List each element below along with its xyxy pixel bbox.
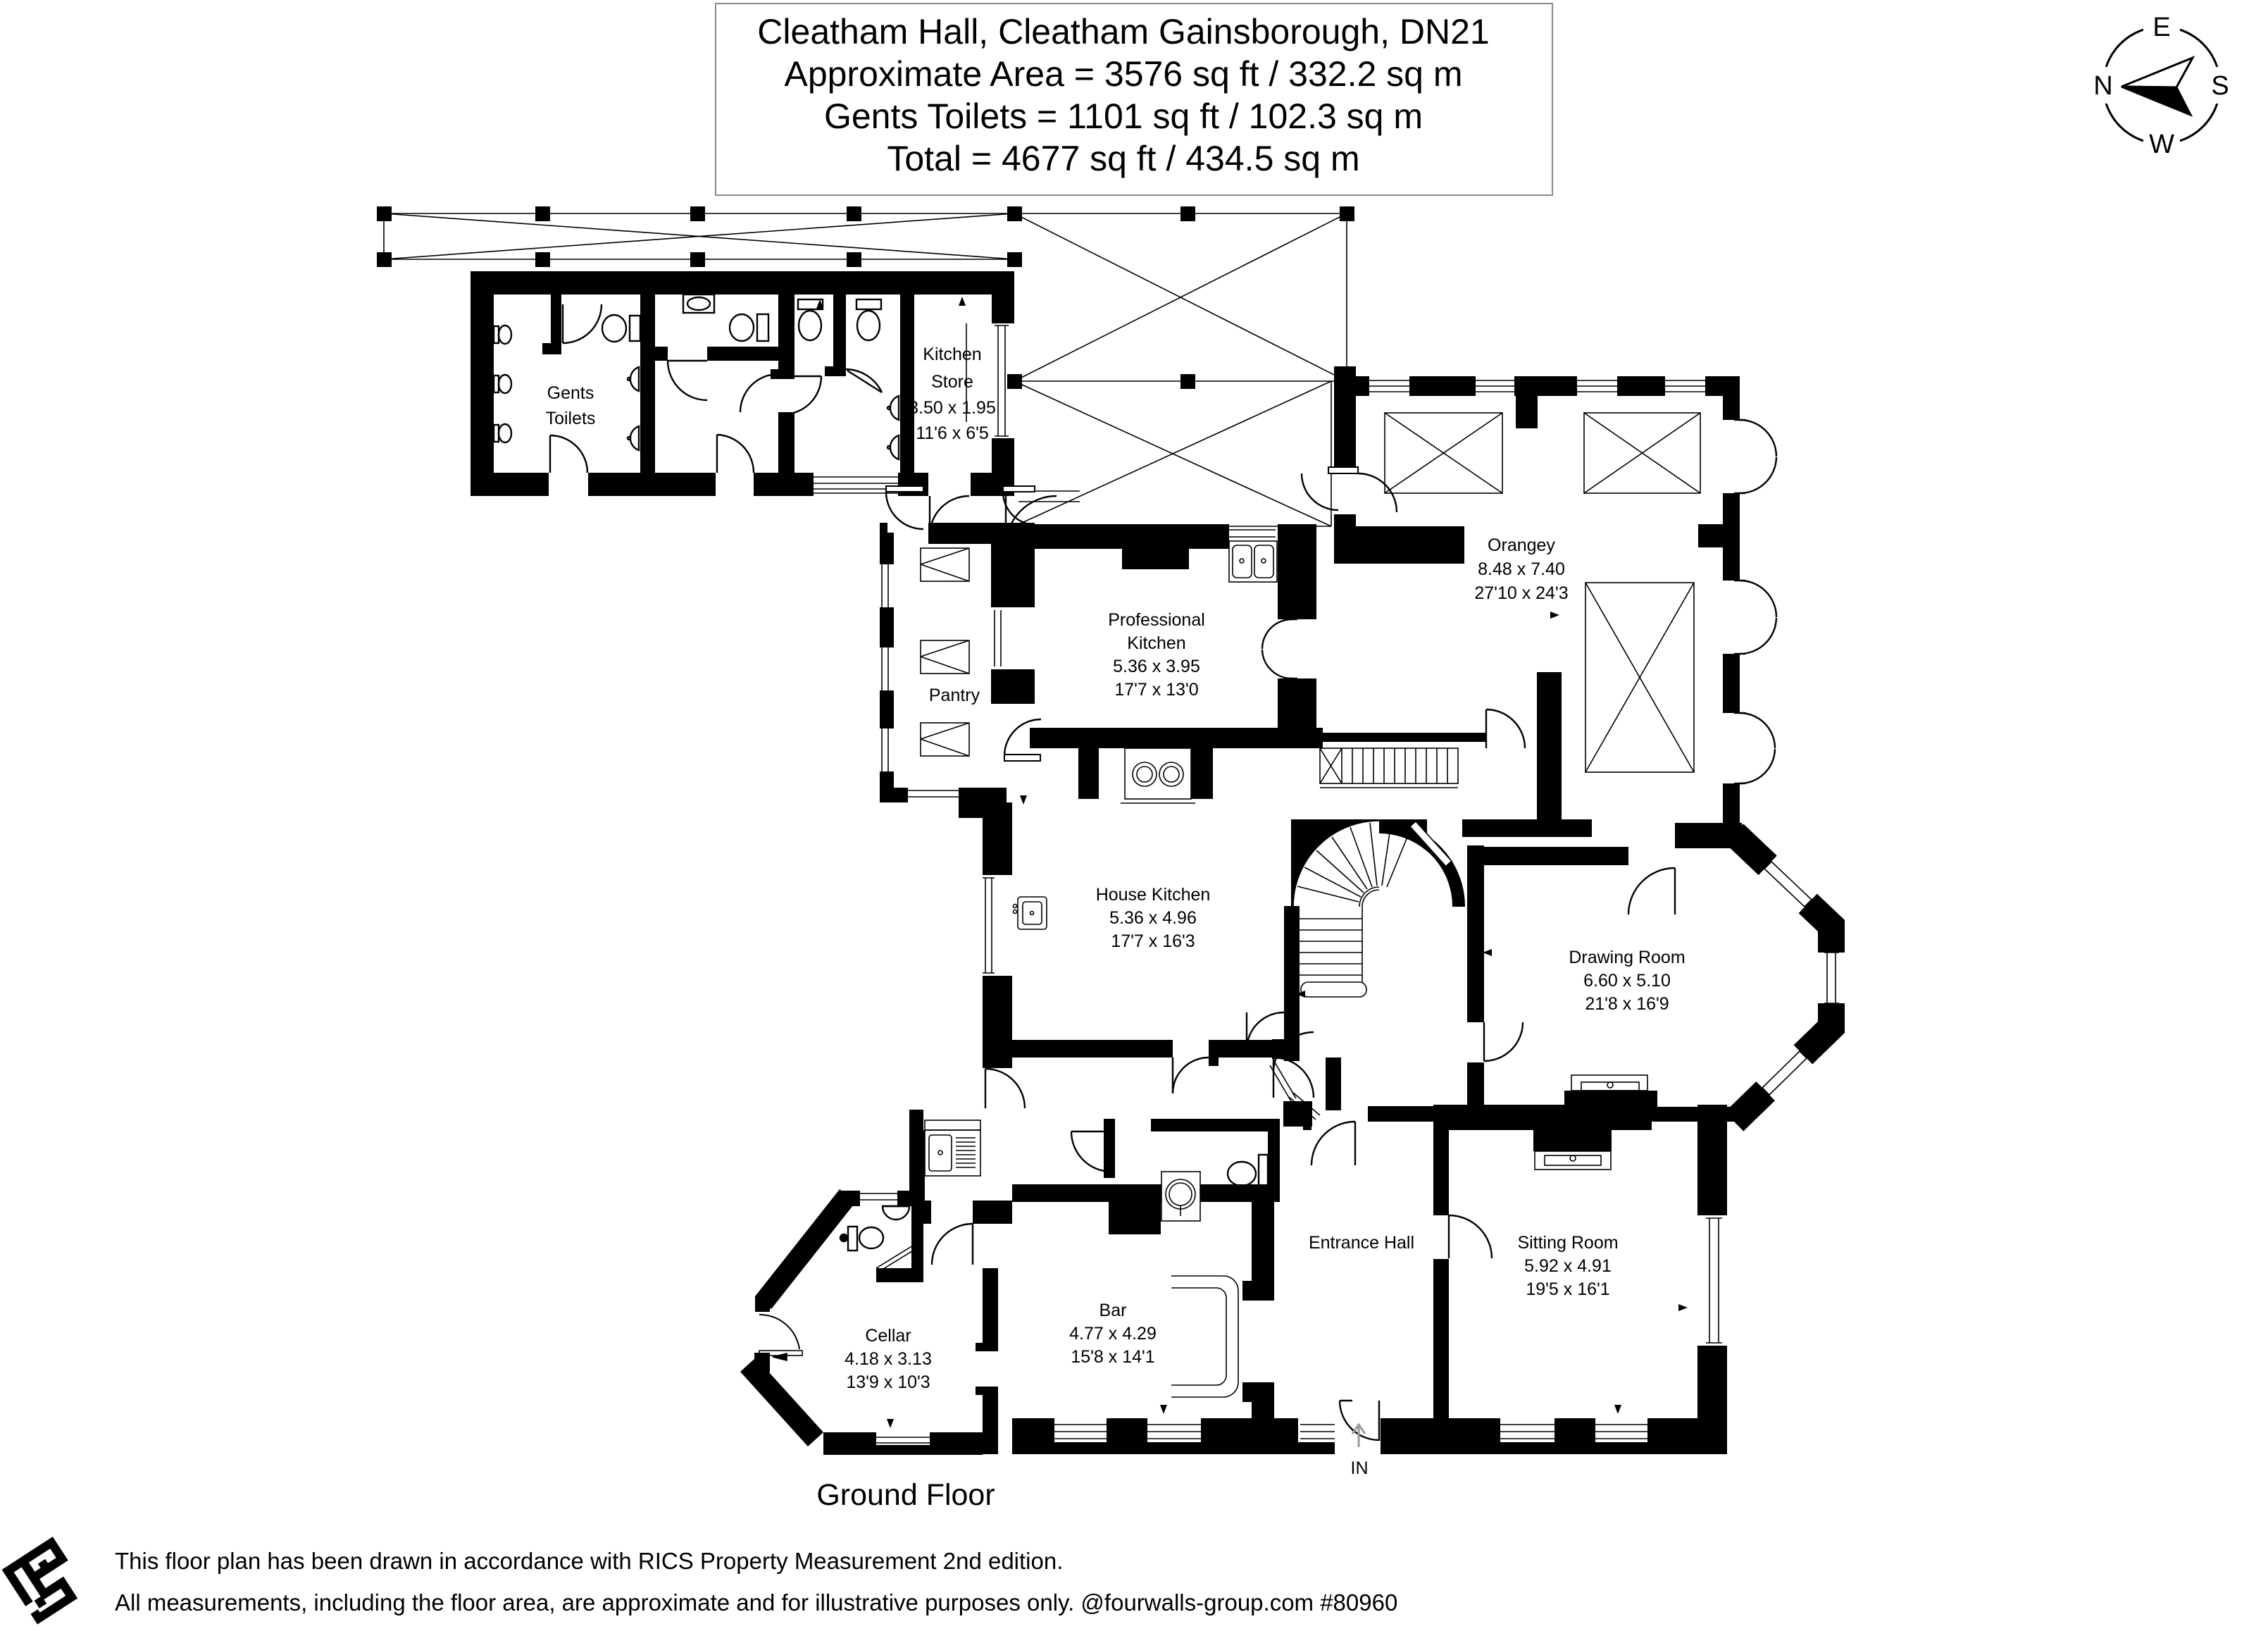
svg-text:4.18 x 3.13: 4.18 x 3.13 [845, 1349, 932, 1369]
svg-text:N: N [2093, 71, 2112, 101]
svg-text:Kitchen: Kitchen [1127, 633, 1185, 653]
svg-text:Sitting Room: Sitting Room [1517, 1233, 1618, 1253]
svg-text:5.36 x 3.95: 5.36 x 3.95 [1113, 657, 1200, 676]
svg-text:Gents Toilets = 1101 sq ft / 1: Gents Toilets = 1101 sq ft / 102.3 sq m [824, 97, 1423, 136]
svg-text:17'7 x 13'0: 17'7 x 13'0 [1114, 680, 1198, 700]
svg-text:4.77 x 4.29: 4.77 x 4.29 [1069, 1324, 1157, 1344]
svg-text:13'9 x 10'3: 13'9 x 10'3 [846, 1372, 930, 1392]
svg-text:Entrance Hall: Entrance Hall [1309, 1233, 1414, 1253]
svg-text:Kitchen: Kitchen [923, 345, 981, 364]
svg-text:8.48 x 7.40: 8.48 x 7.40 [1478, 559, 1565, 579]
svg-text:Total = 4677 sq ft / 434.5 sq: Total = 4677 sq ft / 434.5 sq m [887, 139, 1359, 178]
svg-text:This floor plan has been drawn: This floor plan has been drawn in accord… [115, 1548, 1063, 1574]
svg-text:6.60 x 5.10: 6.60 x 5.10 [1583, 971, 1671, 991]
svg-text:17'7 x 16'3: 17'7 x 16'3 [1111, 931, 1195, 951]
svg-text:27'10 x 24'3: 27'10 x 24'3 [1474, 583, 1568, 603]
svg-text:5.92 x 4.91: 5.92 x 4.91 [1524, 1256, 1612, 1276]
svg-text:Approximate Area = 3576 sq ft: Approximate Area = 3576 sq ft / 332.2 sq… [784, 54, 1462, 94]
svg-text:19'5 x 16'1: 19'5 x 16'1 [1526, 1279, 1609, 1299]
svg-text:Ground Floor: Ground Floor [816, 1478, 995, 1512]
svg-text:S: S [2211, 71, 2229, 101]
svg-text:Toilets: Toilets [546, 409, 596, 428]
svg-text:Drawing Room: Drawing Room [1569, 948, 1685, 967]
svg-text:Orangey: Orangey [1488, 535, 1555, 555]
svg-text:21'8 x 16'9: 21'8 x 16'9 [1585, 994, 1669, 1014]
svg-text:All measurements, including th: All measurements, including the floor ar… [115, 1589, 1397, 1616]
svg-text:Cleatham Hall, Cleatham Gainsb: Cleatham Hall, Cleatham Gainsborough, DN… [757, 12, 1489, 51]
svg-text:Gents: Gents [547, 383, 594, 403]
svg-text:15'8 x 14'1: 15'8 x 14'1 [1071, 1347, 1154, 1367]
svg-text:IN: IN [1351, 1458, 1369, 1478]
svg-text:Pantry: Pantry [929, 686, 980, 705]
svg-text:House Kitchen: House Kitchen [1096, 885, 1211, 905]
svg-text:Professional: Professional [1108, 610, 1205, 630]
svg-text:Store: Store [931, 372, 973, 392]
svg-text:E: E [2152, 13, 2170, 42]
svg-text:3.50 x 1.95: 3.50 x 1.95 [909, 398, 996, 418]
svg-text:Bar: Bar [1099, 1301, 1127, 1320]
svg-text:5.36 x 4.96: 5.36 x 4.96 [1109, 908, 1197, 928]
svg-text:W: W [2149, 130, 2174, 159]
svg-text:11'6 x 6'5: 11'6 x 6'5 [916, 423, 989, 443]
svg-text:Cellar: Cellar [865, 1326, 911, 1346]
